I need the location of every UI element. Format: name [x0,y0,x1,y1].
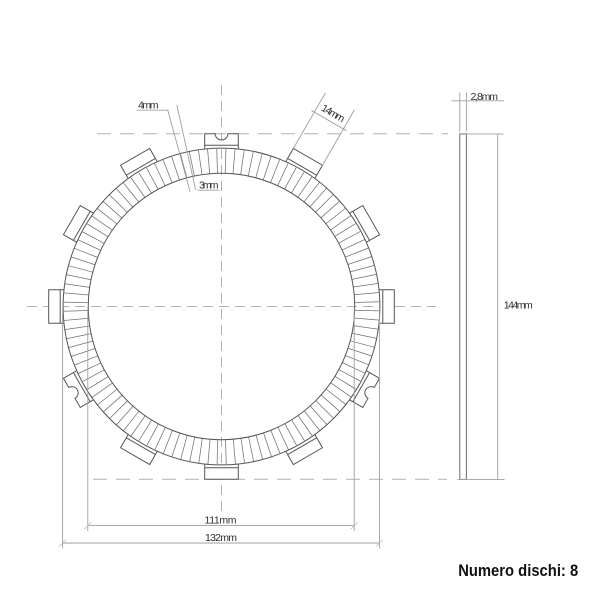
svg-text:2,8mm: 2,8mm [471,91,499,103]
svg-text:132mm: 132mm [205,532,237,544]
svg-text:4mm: 4mm [138,100,159,112]
svg-text:111mm: 111mm [205,515,237,527]
svg-text:3mm: 3mm [199,180,219,192]
svg-text:144mm: 144mm [504,300,533,312]
svg-text:Numero dischi: 8: Numero dischi: 8 [458,561,578,580]
